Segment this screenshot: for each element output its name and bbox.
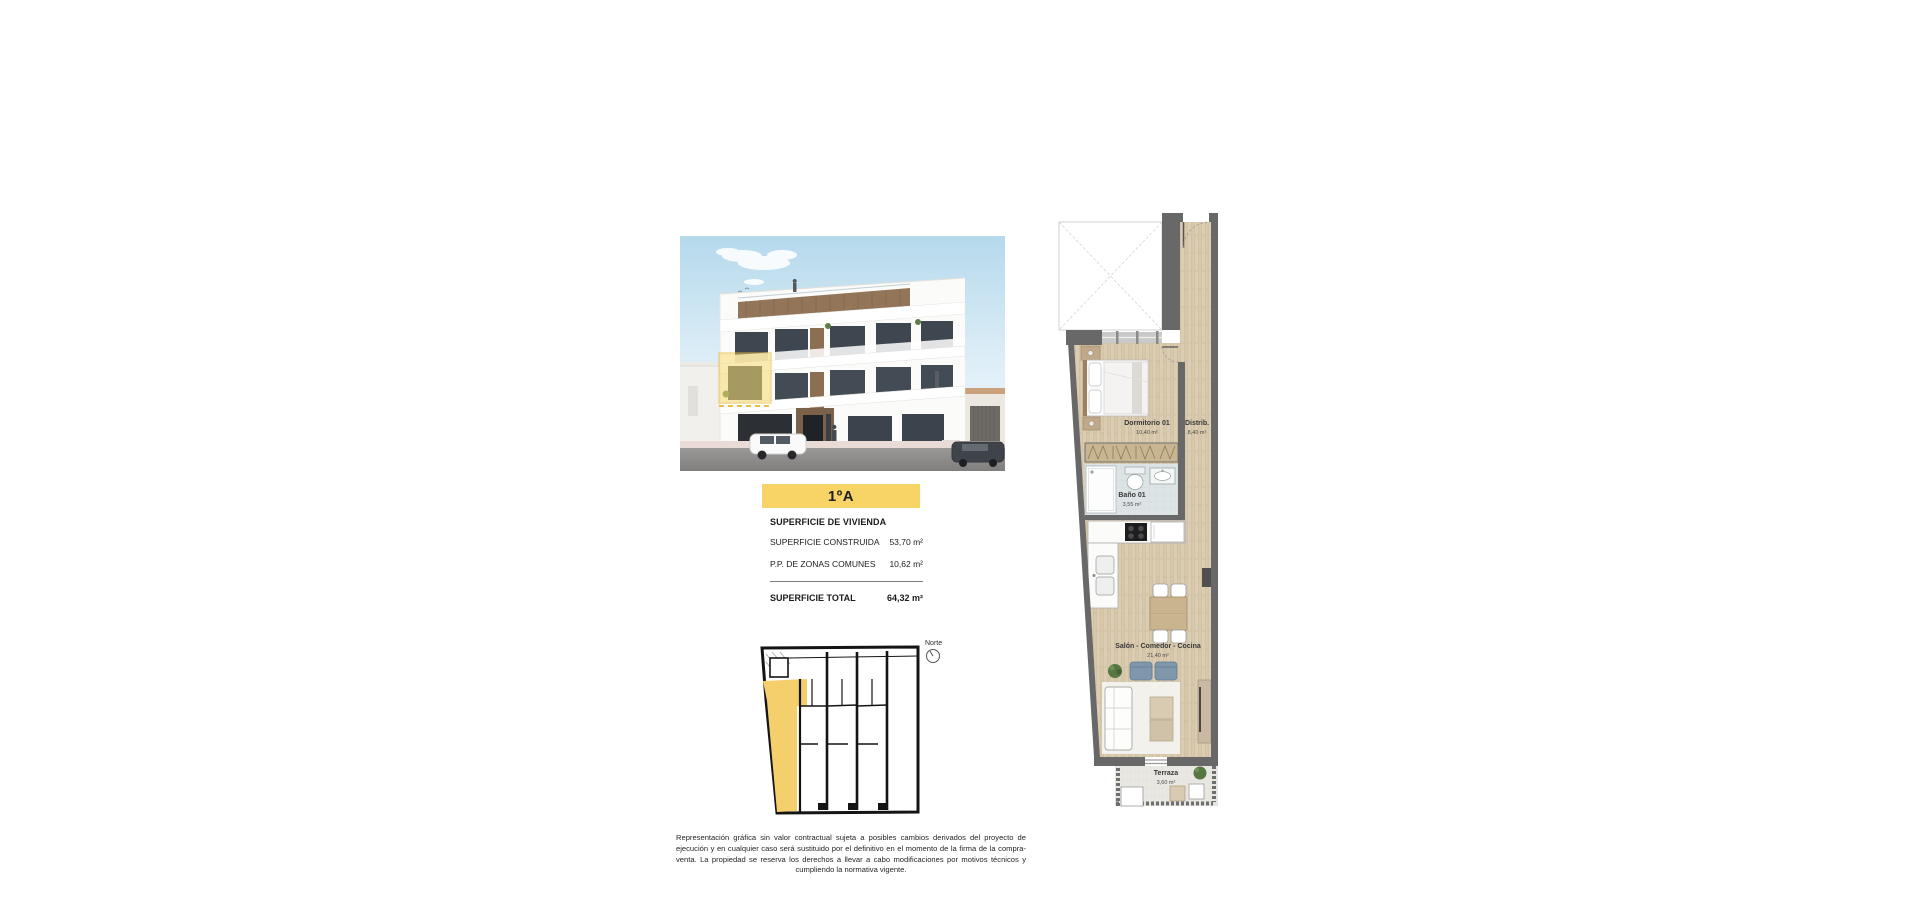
main-floor-plan: Dormitorio 01 10,40 m² Distrib. 8,40 m² … <box>1058 172 1236 822</box>
surface-total-value: 64,32 m² <box>887 593 923 603</box>
coffee-table <box>1150 697 1173 719</box>
armchair-icon <box>1130 662 1152 680</box>
terrace-sliding-door <box>1145 760 1167 764</box>
surface-row-construida: SUPERFICIE CONSTRUIDA 53,70 m² <box>770 537 923 547</box>
room-area-dormitorio: 10,40 m² <box>1136 430 1158 436</box>
room-area-bano: 3,55 m² <box>1123 502 1142 508</box>
stairwell <box>770 658 788 677</box>
compass-icon <box>925 648 941 664</box>
building-render <box>680 236 1005 471</box>
north-label: Norte <box>925 640 955 647</box>
surface-row-value: 53,70 m² <box>889 537 923 547</box>
unit-banner: 1ºA <box>762 484 920 508</box>
unit-label: 1ºA <box>828 488 854 505</box>
surface-row-value: 10,62 m² <box>889 559 923 569</box>
room-label-dormitorio: Dormitorio 01 <box>1124 420 1170 427</box>
room-label-bano: Baño 01 <box>1118 492 1145 499</box>
armchair-icon <box>1155 662 1177 680</box>
room-label-salon: Salón - Comedor - Cocina <box>1115 643 1201 650</box>
north-indicator: Norte <box>925 640 955 669</box>
cooktop-icon <box>1125 523 1147 541</box>
sink-icon <box>1096 556 1114 574</box>
divider <box>770 581 923 582</box>
apartment-brochure-page: 1ºA SUPERFICIE DE VIVIENDA SUPERFICIE CO… <box>0 0 1920 920</box>
sofa-icon <box>1105 687 1132 750</box>
surface-summary: SUPERFICIE DE VIVIENDA SUPERFICIE CONSTR… <box>770 517 923 603</box>
lightwell <box>1059 222 1162 330</box>
disclaimer-text: Representación gráfica sin valor contrac… <box>676 833 1026 876</box>
bedroom-window <box>1102 331 1162 344</box>
wardrobe <box>1085 443 1178 462</box>
surface-row-label: SUPERFICIE CONSTRUIDA <box>770 537 880 547</box>
toilet-icon <box>1125 467 1145 474</box>
surface-row-label: P.P. DE ZONAS COMUNES <box>770 559 876 569</box>
room-area-salon: 21,40 m² <box>1147 653 1169 659</box>
room-area-distribuidor: 8,40 m² <box>1188 430 1207 436</box>
room-label-distribuidor: Distrib. <box>1185 420 1209 427</box>
coffee-table <box>1150 720 1173 741</box>
unit-highlight-overlay <box>719 353 771 406</box>
surface-total-label: SUPERFICIE TOTAL <box>770 593 856 603</box>
surface-title: SUPERFICIE DE VIVIENDA <box>770 517 923 527</box>
surface-total-row: SUPERFICIE TOTAL 64,32 m² <box>770 593 923 603</box>
surface-row-comunes: P.P. DE ZONAS COMUNES 10,62 m² <box>770 559 923 569</box>
room-area-terraza: 3,60 m² <box>1157 780 1176 786</box>
room-label-terraza: Terraza <box>1154 770 1178 777</box>
key-site-plan <box>758 644 923 816</box>
